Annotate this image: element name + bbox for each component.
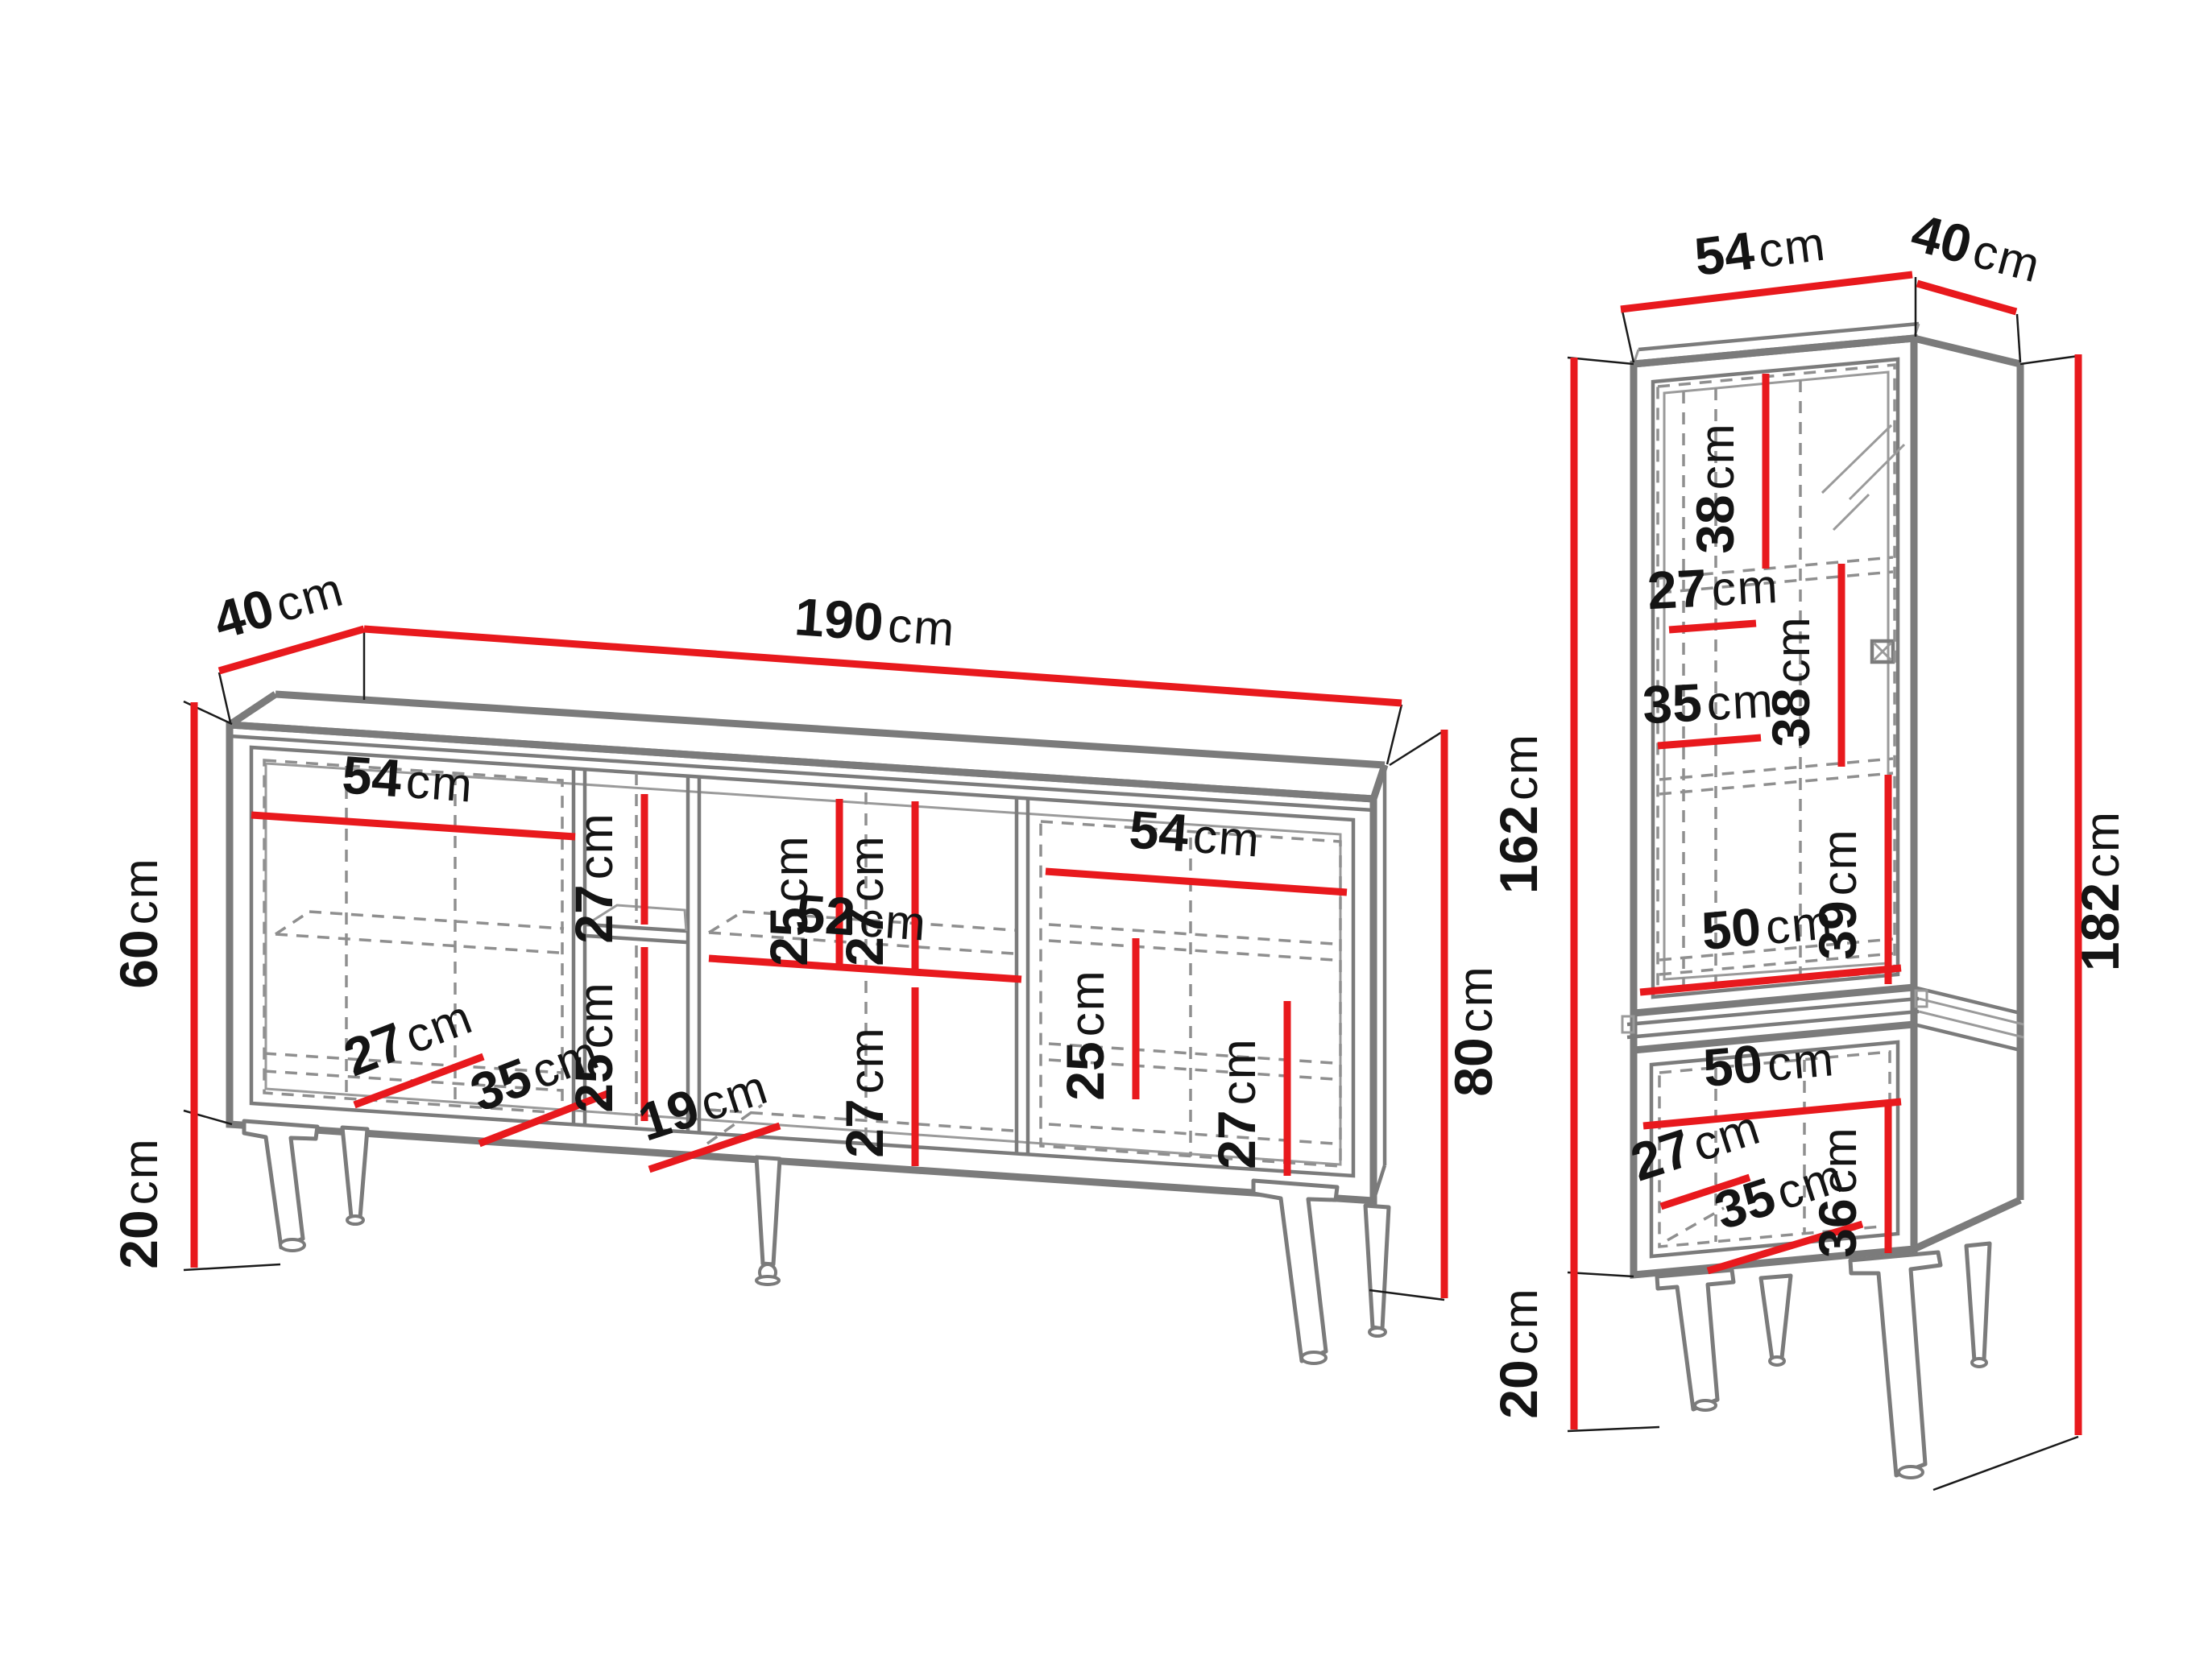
center-width-label: 52cm bbox=[794, 883, 930, 951]
right-door-width-label: 54cm bbox=[1128, 799, 1263, 867]
left-door-width-label: 54cm bbox=[341, 744, 476, 813]
right-lower-height-a-label: 25cm bbox=[1055, 969, 1115, 1100]
vitrine-depth-label: 40cm bbox=[1905, 202, 2048, 294]
vitrine-back-right-leg bbox=[1966, 1243, 1990, 1361]
shelf-depth-a-label: 27cm bbox=[1646, 554, 1780, 620]
vitrine-leg-height-label: 20cm bbox=[1489, 1287, 1548, 1418]
glass-section-height-label: 38cm bbox=[1685, 422, 1745, 553]
furniture-dimension-diagram: 40cm 190cm 60cm 20cm 80cm 54cm 27cm 35cm… bbox=[0, 0, 2212, 1659]
shelf-depth-b-label: 35cm bbox=[1641, 668, 1775, 734]
right-door-width-line bbox=[1046, 871, 1347, 892]
vitrine-front-left-leg bbox=[1657, 1270, 1734, 1409]
shelf-depth-b-line bbox=[1658, 738, 1761, 746]
left-shelf-depth-label: 27cm bbox=[336, 985, 480, 1088]
vitrine-front-right-leg bbox=[1850, 1252, 1941, 1475]
upper-width-label: 50cm bbox=[1699, 890, 1835, 961]
sideboard-center-leg bbox=[756, 1157, 780, 1264]
vitrine-body-height-label: 162cm bbox=[1489, 733, 1548, 894]
sideboard-leg-height-label: 20cm bbox=[109, 1137, 168, 1268]
vitrine-legs bbox=[1657, 1243, 1990, 1478]
base-height-label: 36cm bbox=[1808, 1126, 1867, 1257]
diagram-canvas: 40cm 190cm 60cm 20cm 80cm 54cm 27cm 35cm… bbox=[0, 0, 2212, 1659]
vitrine-total-height-label: 182cm bbox=[2070, 810, 2130, 971]
sideboard-body-height-label: 60cm bbox=[109, 857, 168, 988]
mid-lower-height-label: 25cm bbox=[564, 981, 623, 1112]
sideboard-back-left-leg bbox=[342, 1127, 367, 1218]
base-width-label: 50cm bbox=[1700, 1027, 1837, 1098]
vitrine-width-line bbox=[1621, 275, 1912, 309]
sideboard-width-label: 190cm bbox=[793, 586, 958, 657]
center-lower-height-label: 27cm bbox=[835, 1026, 894, 1157]
mid-upper-height-label: 27cm bbox=[564, 812, 623, 943]
vitrine-width-label: 54cm bbox=[1692, 211, 1829, 286]
sideboard-total-height-label: 80cm bbox=[1444, 965, 1503, 1096]
sideboard-front-left-leg bbox=[244, 1121, 317, 1247]
sideboard-back-right-leg bbox=[1365, 1206, 1389, 1329]
vitrine-door-handle-icon bbox=[1872, 641, 1893, 662]
vitrine-depth-line bbox=[1917, 283, 2016, 312]
sideboard-front-right-leg bbox=[1253, 1181, 1337, 1361]
shelf-depth-a-line bbox=[1669, 623, 1756, 630]
vitrine-middle-leg bbox=[1761, 1276, 1791, 1359]
left-door-width-line bbox=[251, 815, 575, 837]
vitrine-dimension-labels: 54cm 40cm 162cm 20cm 182cm 38cm 27cm 38c… bbox=[1489, 202, 2130, 1419]
base-width-line bbox=[1643, 1102, 1901, 1126]
sideboard-width-line bbox=[364, 629, 1402, 703]
right-lower-height-b-label: 27cm bbox=[1207, 1037, 1266, 1169]
